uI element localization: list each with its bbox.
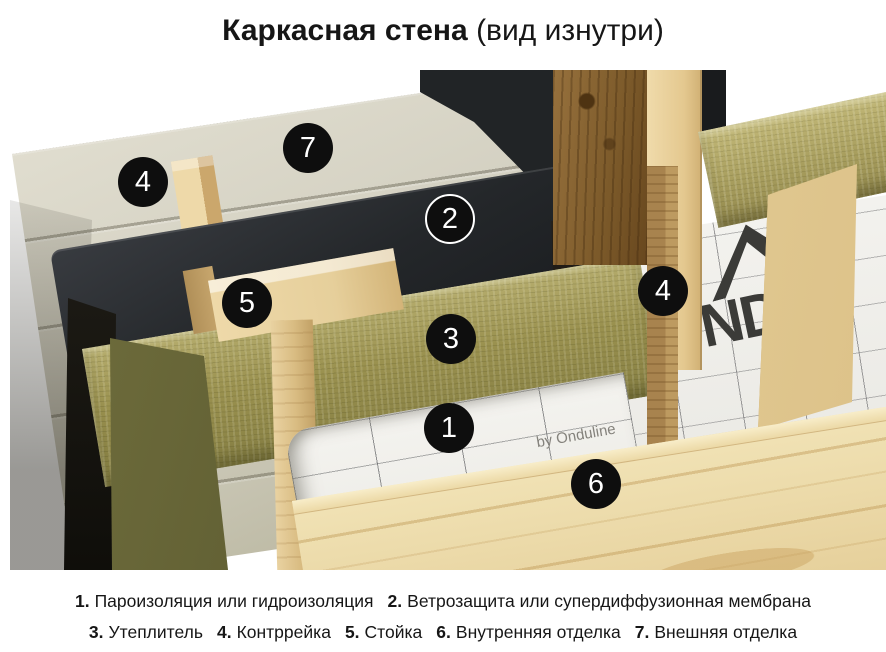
legend-item-4: 4.Контррейка <box>217 617 331 648</box>
wall-cutaway-illustration: ND by Onduline 47253416 <box>10 70 886 570</box>
page-title-main: Каркасная стена <box>222 14 468 47</box>
timber-beam <box>553 70 647 265</box>
legend-item-7: 7.Внешняя отделка <box>635 617 797 648</box>
legend-item-3: 3.Утеплитель <box>89 617 203 648</box>
legend-item-6: 6.Внутренняя отделка <box>436 617 620 648</box>
legend-item-1: 1.Пароизоляция или гидроизоляция <box>75 586 374 617</box>
callout-4: 4 <box>118 157 168 207</box>
frame-corner-shadow <box>700 70 726 132</box>
callout-2: 2 <box>425 194 475 244</box>
callout-6: 6 <box>571 459 621 509</box>
membrane-brand-text: by Onduline <box>535 421 617 452</box>
legend-row-2: 3.Утеплитель4.Контррейка5.Стойка6.Внутре… <box>0 617 886 648</box>
callout-4: 4 <box>638 266 688 316</box>
callout-1: 1 <box>424 403 474 453</box>
callout-5: 5 <box>222 278 272 328</box>
page-title-suffix: (вид изнутри) <box>468 14 664 47</box>
legend-item-2: 2.Ветрозащита или супердиффузионная мемб… <box>388 586 811 617</box>
legend-row-1: 1.Пароизоляция или гидроизоляция2.Ветроз… <box>0 586 886 617</box>
legend: 1.Пароизоляция или гидроизоляция2.Ветроз… <box>0 586 886 648</box>
callout-3: 3 <box>426 314 476 364</box>
page-title: Каркасная стена (вид изнутри) <box>0 14 886 48</box>
callout-7: 7 <box>283 123 333 173</box>
legend-item-5: 5.Стойка <box>345 617 422 648</box>
